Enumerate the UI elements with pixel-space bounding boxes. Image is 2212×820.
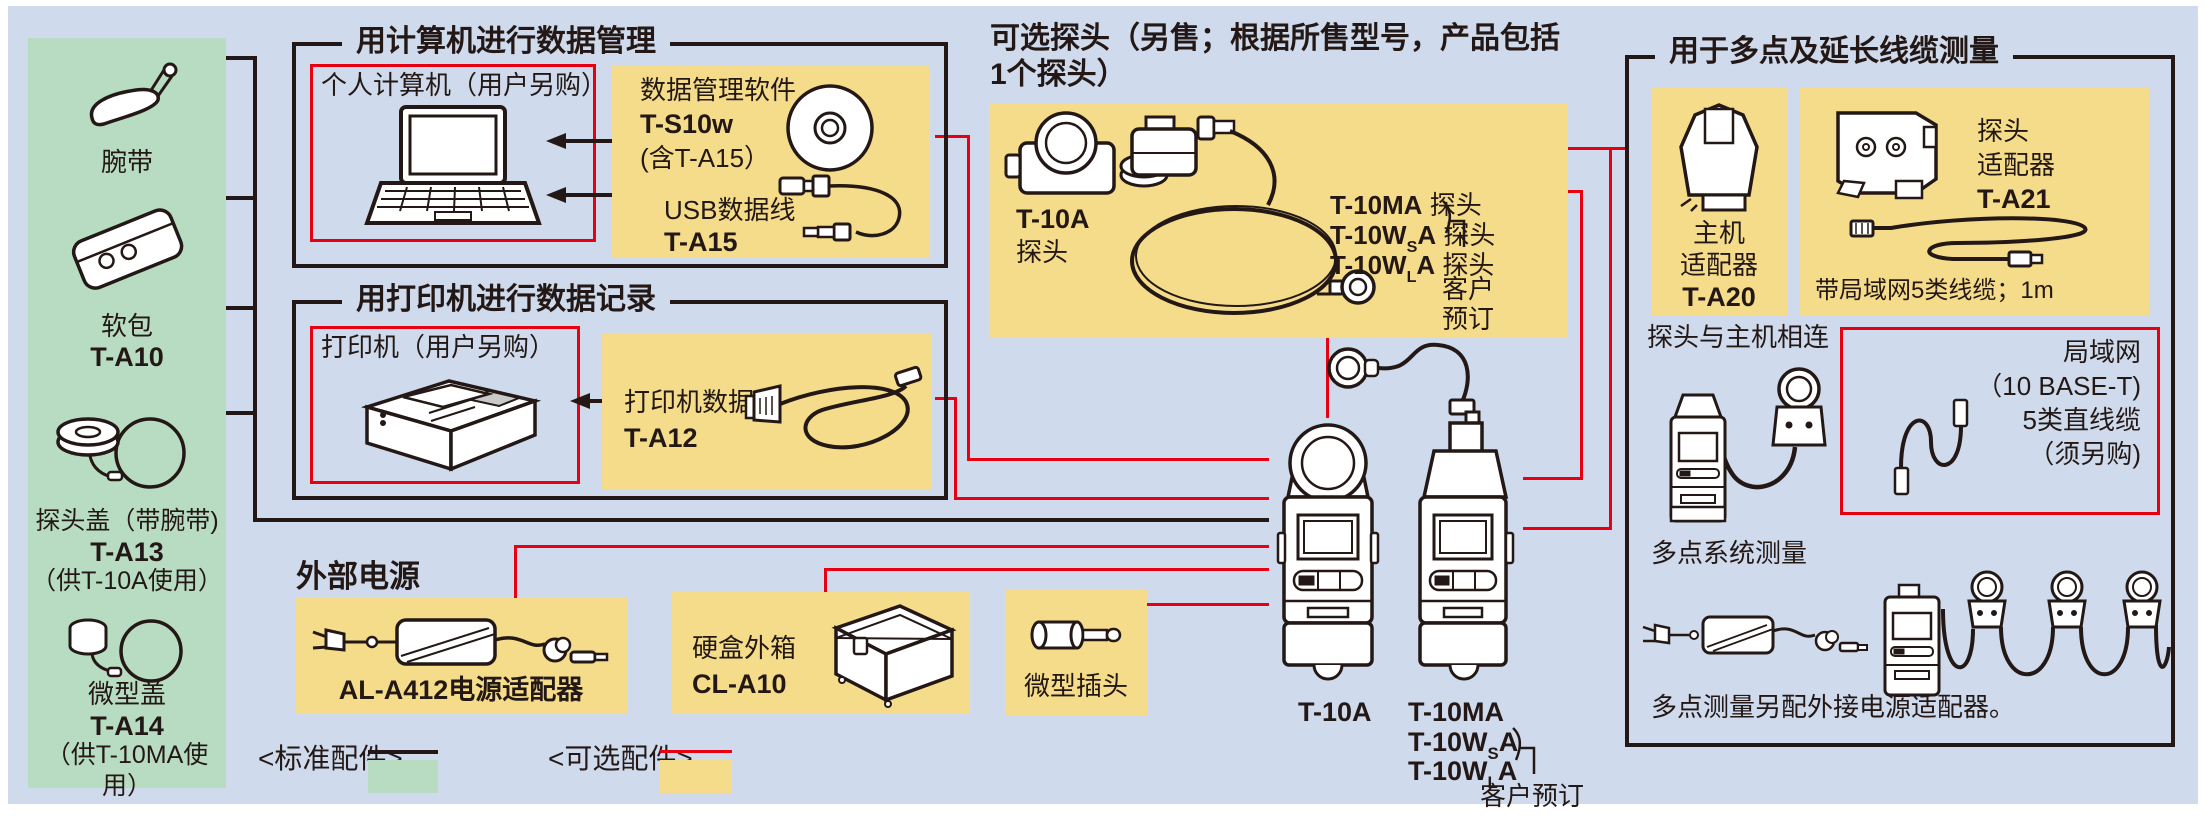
multipoint-note: 多点测量另配外接电源适配器。 [1651, 691, 2015, 724]
lan-line2: （10 BASE-T) [1976, 370, 2141, 404]
probes-section-title-line1: 可选探头（另售；根据所售型号，产品包括 [990, 20, 1560, 58]
wrist-strap-illustration [80, 56, 190, 138]
multipoint-section-title: 用于多点及延长线缆测量 [1655, 33, 2013, 71]
connector-line-red [967, 458, 1269, 461]
connector-line-red [824, 568, 1269, 571]
lan-line1: 局域网 [2063, 336, 2141, 370]
arrow-left-icon [544, 184, 616, 206]
connector-line-red [1568, 147, 1626, 150]
connector-line-black [253, 518, 1269, 522]
probe-adapter-line1: 探头 [1977, 115, 2029, 148]
pc-box: 个人计算机（用户另购） [310, 64, 596, 242]
usb-cable-illustration [778, 166, 926, 256]
power-section-title: 外部电源 [296, 558, 420, 597]
connector-line-black [226, 306, 256, 310]
connector-line-red [1609, 147, 1612, 530]
connector-line-black [253, 56, 257, 522]
t10a-probe-label: 探头 [1016, 236, 1068, 269]
probe-cover-model: T-A13 [28, 536, 226, 568]
software-model: T-S10w [640, 108, 733, 140]
lan-note-box: 局域网 （10 BASE-T) 5类直线缆 （须另购) [1840, 327, 2160, 515]
software-name: 数据管理软件 [640, 74, 796, 107]
cd-icon [784, 82, 876, 174]
probe-adapter-box: 探头 适配器 T-A21 带局域网5类线缆；1m [1799, 87, 2149, 315]
connector-line-red [824, 568, 827, 592]
connector-line-red [1523, 527, 1612, 530]
host-adapter-box: 主机 适配器 T-A20 [1651, 87, 1787, 315]
connector-line-red [954, 397, 957, 500]
mini-plug-illustration [1027, 612, 1123, 658]
probe-cover-label: 探头盖（带腕带) [28, 506, 226, 537]
ac-adapter-illustration [309, 606, 613, 676]
hard-case-box: 硬盒外箱 CL-A10 [672, 592, 970, 714]
lan-line3: 5类直线缆 [2023, 404, 2141, 438]
connector-line-red [514, 545, 1269, 548]
connector-line-black [226, 56, 256, 60]
printer-section-box: 用打印机进行数据记录 打印机（用户另购） 打印机数据线 T-A12 [292, 300, 948, 500]
usb-cable-name: USB数据线 [664, 194, 795, 227]
software-box: 数据管理软件 T-S10w (含T-A15） USB数据线 T-A15 [612, 66, 930, 258]
standard-accessories-panel: 腕带 软包 T-A10 探头盖（带腕带) T-A13 （供T-10A使用） [28, 38, 226, 788]
t10wsa-unit-label: T-10WSA [1408, 726, 1518, 758]
soft-case-label: 软包 [28, 310, 226, 343]
soft-case-model: T-A10 [28, 341, 226, 373]
micro-cover-note: （供T-10MA使用） [28, 740, 226, 803]
hard-case-illustration [800, 598, 962, 710]
host-adapter-illustration [1661, 95, 1777, 217]
legend-optional-line [660, 750, 732, 753]
connector-line-red [967, 135, 970, 461]
probes-box: T-10A 探头 T-10MA 探头 T-10WSA 探头 T-10WLA 探头… [990, 103, 1568, 338]
bracket-icon [1508, 726, 1538, 778]
t10a-probe-model: T-10A [1016, 203, 1090, 235]
t10a-unit-label: T-10A [1298, 696, 1372, 728]
computer-section-title: 用计算机进行数据管理 [342, 23, 670, 61]
probes-section-title-line2: 1个探头） [990, 56, 1127, 94]
lan-line4: （须另购) [2028, 438, 2141, 472]
printer-box: 打印机（用户另购） [310, 326, 580, 484]
arrow-left-icon [544, 130, 616, 152]
connector-line-red [1147, 603, 1269, 606]
mini-plug-box: 微型插头 [1005, 590, 1147, 716]
probe-row-2: T-10WSA 探头 [1330, 221, 1495, 251]
software-note: (含T-A15） [640, 142, 770, 175]
units-order-note: 客户预订 [1480, 780, 1584, 813]
host-adapter-line1: 主机 [1651, 217, 1787, 250]
lan-cable-illustration [1885, 372, 1990, 500]
printer-section-title: 用打印机进行数据记录 [342, 281, 670, 319]
micro-cover-model: T-A14 [28, 710, 226, 742]
connect-label: 探头与主机相连 [1647, 321, 1829, 354]
probe-cover-illustration [50, 398, 205, 503]
multipoint-section-box: 用于多点及延长线缆测量 主机 适配器 T-A20 探头 适配器 [1625, 55, 2175, 747]
probe-adapter-illustration [1824, 101, 1954, 211]
legend-standard-line [368, 750, 438, 754]
t10ma-meter-illustration [1408, 415, 1523, 685]
probe-adapter-line2: 适配器 [1977, 149, 2055, 182]
probe-host-connect-illustration [1649, 357, 1864, 562]
printer-illustration [339, 369, 549, 477]
printer-cable-illustration [744, 348, 924, 478]
computer-section-box: 用计算机进行数据管理 个人计算机（用户另购） 数据管理软件 T-S10w (含T [292, 42, 948, 268]
printer-cable-box: 打印机数据线 T-A12 [602, 334, 932, 490]
connector-line-red [1523, 477, 1583, 480]
probes-order-note-1: 客户 [1442, 273, 1494, 306]
printer-label: 打印机（用户另购） [321, 331, 555, 364]
connector-line-red [954, 497, 1269, 500]
ac-adapter-label: AL-A412电源适配器 [295, 674, 627, 706]
legend-optional-swatch [660, 760, 732, 793]
connector-line-red [1580, 190, 1583, 480]
micro-cover-label: 微型盖 [28, 678, 226, 711]
hard-case-model: CL-A10 [692, 668, 787, 700]
hard-case-name: 硬盒外箱 [692, 632, 796, 665]
connector-line-red [514, 545, 517, 598]
probe-adapter-note: 带局域网5类线缆；1m [1815, 277, 2054, 306]
usb-cable-model: T-A15 [664, 226, 738, 258]
host-adapter-line2: 适配器 [1651, 249, 1787, 282]
host-adapter-model: T-A20 [1651, 281, 1787, 313]
probe-cover-note: （供T-10A使用） [28, 566, 226, 597]
printer-cable-model: T-A12 [624, 422, 698, 454]
connector-line-red [1568, 190, 1582, 193]
bracket-icon [1438, 199, 1468, 251]
mini-plug-label: 微型插头 [1005, 670, 1147, 703]
connector-line-black [226, 196, 256, 200]
accessory-system-diagram: 腕带 软包 T-A10 探头盖（带腕带) T-A13 （供T-10A使用） [0, 0, 2212, 820]
soft-case-illustration [58, 190, 198, 308]
wrist-strap-label: 腕带 [28, 146, 226, 179]
lan-cable-short-illustration [1847, 209, 2109, 267]
multipoint-system-illustration [1637, 565, 2167, 705]
t10a-meter-illustration [1268, 415, 1388, 685]
pc-label: 个人计算机（用户另购） [321, 69, 607, 102]
ac-adapter-box: AL-A412电源适配器 [295, 598, 627, 714]
t10ma-unit-label: T-10MA [1408, 696, 1504, 728]
connector-line-black [226, 411, 256, 415]
legend-standard-swatch [368, 760, 438, 793]
laptop-illustration [363, 105, 543, 235]
